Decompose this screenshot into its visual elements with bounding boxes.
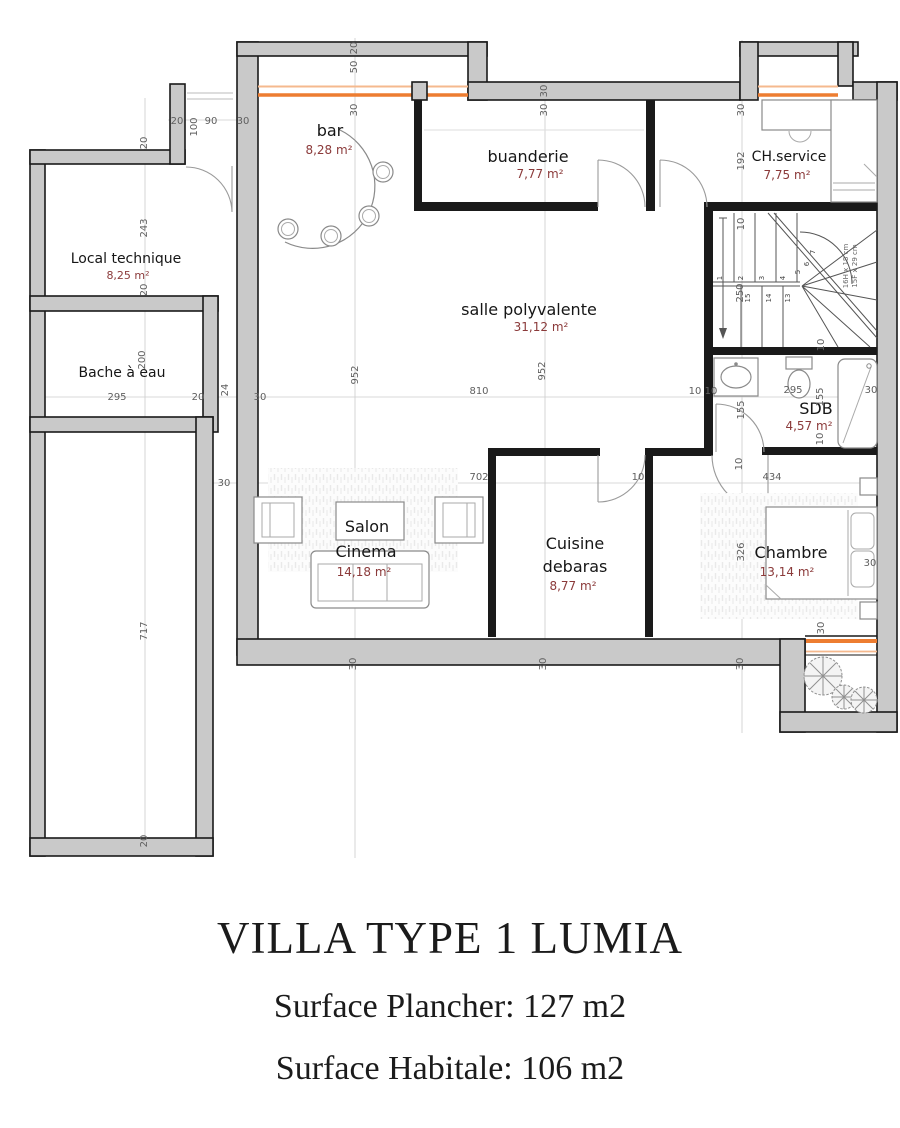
- armchair-right: [435, 497, 483, 543]
- room-label-cuisine-1: Cuisine: [546, 534, 605, 553]
- room-area-salle: 31,12 m²: [514, 320, 569, 334]
- dimension-label: 30: [736, 104, 747, 117]
- stairs-note-line1: 16H x 18 cm: [842, 244, 850, 289]
- room-label-salle: salle polyvalente: [461, 300, 597, 319]
- dimension-label: 30: [865, 385, 878, 396]
- room-label-ch-service: CH.service: [752, 149, 827, 165]
- dimension-label: 192: [736, 151, 747, 170]
- room-area-local-technique: 8,25 m²: [106, 269, 149, 282]
- bed-single: [831, 100, 877, 202]
- dimension-label: 30: [816, 622, 827, 635]
- dimension-label: 30: [254, 392, 267, 403]
- dimension-label: 20: [192, 392, 205, 403]
- dimension-label: 30: [349, 104, 360, 117]
- room-area-bar: 8,28 m²: [305, 143, 352, 157]
- plants: [804, 657, 877, 713]
- page: 1234567151413 16H x 18 cm 15F x 29 cm: [0, 0, 900, 1128]
- dimension-label: 20: [139, 284, 150, 297]
- dimension-label: 10: [689, 386, 702, 397]
- room-area-salon: 14,18 m²: [337, 565, 392, 579]
- dimension-label: 10: [815, 433, 826, 446]
- dimension-label: 952: [537, 361, 548, 380]
- floor-plan: 1234567151413 16H x 18 cm 15F x 29 cm: [0, 0, 900, 872]
- room-label-local-technique: Local technique: [71, 251, 182, 267]
- room-label-bar: bar: [317, 121, 344, 140]
- chair: [789, 131, 811, 142]
- dimension-label: 10: [816, 339, 827, 352]
- room-area-buanderie: 7,77 m²: [516, 167, 563, 181]
- surface-plancher: Surface Plancher: 127 m2: [0, 988, 900, 1026]
- room-label-bache: Bache à eau: [79, 365, 166, 381]
- sink-basin: [721, 366, 751, 388]
- step-number: 13: [784, 294, 792, 303]
- room-area-ch-service: 7,75 m²: [763, 168, 810, 182]
- toilet-tank: [786, 357, 812, 369]
- room-area-chambre: 13,14 m²: [760, 565, 815, 579]
- dimension-label: 155: [815, 387, 826, 406]
- bar-stools: [278, 162, 393, 246]
- staircase[interactable]: 1234567151413 16H x 18 cm 15F x 29 cm: [713, 213, 877, 347]
- doors: [186, 160, 768, 511]
- dimension-label: 810: [469, 386, 488, 397]
- step-number: 7: [809, 250, 817, 254]
- dimension-label: 30: [539, 104, 550, 117]
- room-label-chambre: Chambre: [755, 543, 828, 562]
- dimension-label: 90: [205, 116, 218, 127]
- dimension-label: 100: [189, 117, 200, 136]
- armchair-left: [254, 497, 302, 543]
- dimension-label: 250: [735, 283, 746, 302]
- step-number: 1: [716, 276, 724, 280]
- dimension-label: 326: [736, 542, 747, 561]
- dimension-label: 10: [632, 472, 645, 483]
- step-number: 4: [779, 275, 787, 280]
- room-area-sdb: 4,57 m²: [785, 419, 832, 433]
- dimension-label: 295: [783, 385, 802, 396]
- dimension-label: 30: [538, 658, 549, 671]
- title-block: VILLA TYPE 1 LUMIA Surface Plancher: 127…: [0, 912, 900, 1088]
- dimension-label: 243: [139, 218, 150, 237]
- dimension-label: 717: [139, 621, 150, 640]
- dimension-label: 30: [864, 558, 877, 569]
- dimension-label: 952: [350, 365, 361, 384]
- dimension-label: 20: [171, 116, 184, 127]
- dimension-label: 30: [539, 85, 550, 98]
- dimension-label: 200: [137, 350, 148, 369]
- dimension-label: 702: [469, 472, 488, 483]
- dimension-label: 10: [705, 386, 718, 397]
- step-number: 14: [765, 293, 773, 302]
- surface-habitale: Surface Habitale: 106 m2: [0, 1050, 900, 1088]
- room-label-buanderie: buanderie: [487, 147, 568, 166]
- dimension-label: 295: [107, 392, 126, 403]
- step-number: 2: [737, 276, 745, 280]
- dimension-label: 434: [762, 472, 781, 483]
- salon-furniture: [254, 468, 483, 608]
- dimension-label: 30: [237, 116, 250, 127]
- dimension-label: 30: [348, 658, 359, 671]
- dimension-label: 10: [736, 218, 747, 231]
- step-number: 6: [803, 261, 811, 266]
- nightstand: [860, 602, 877, 619]
- dimension-label: 50: [349, 61, 360, 74]
- dimension-label: 30: [735, 658, 746, 671]
- nightstand: [860, 478, 877, 495]
- room-area-cuisine: 8,77 m²: [549, 579, 596, 593]
- dimension-label: 20: [349, 42, 360, 55]
- step-number: 3: [758, 276, 766, 280]
- plan-title: VILLA TYPE 1 LUMIA: [0, 912, 900, 964]
- dimension-label: 10: [734, 458, 745, 471]
- room-label-salon-2: Cinema: [336, 542, 397, 561]
- dimension-label: 20: [139, 137, 150, 150]
- room-label-cuisine-2: debaras: [543, 557, 608, 576]
- dimension-label: 24: [220, 384, 231, 397]
- step-number: 5: [794, 270, 802, 274]
- dimension-label: 30: [218, 478, 231, 489]
- stairs-note-line2: 15F x 29 cm: [851, 244, 859, 288]
- dimension-label: 20: [139, 835, 150, 848]
- desk: [762, 100, 838, 130]
- room-label-salon-1: Salon: [345, 517, 389, 536]
- dimension-label: 155: [736, 400, 747, 419]
